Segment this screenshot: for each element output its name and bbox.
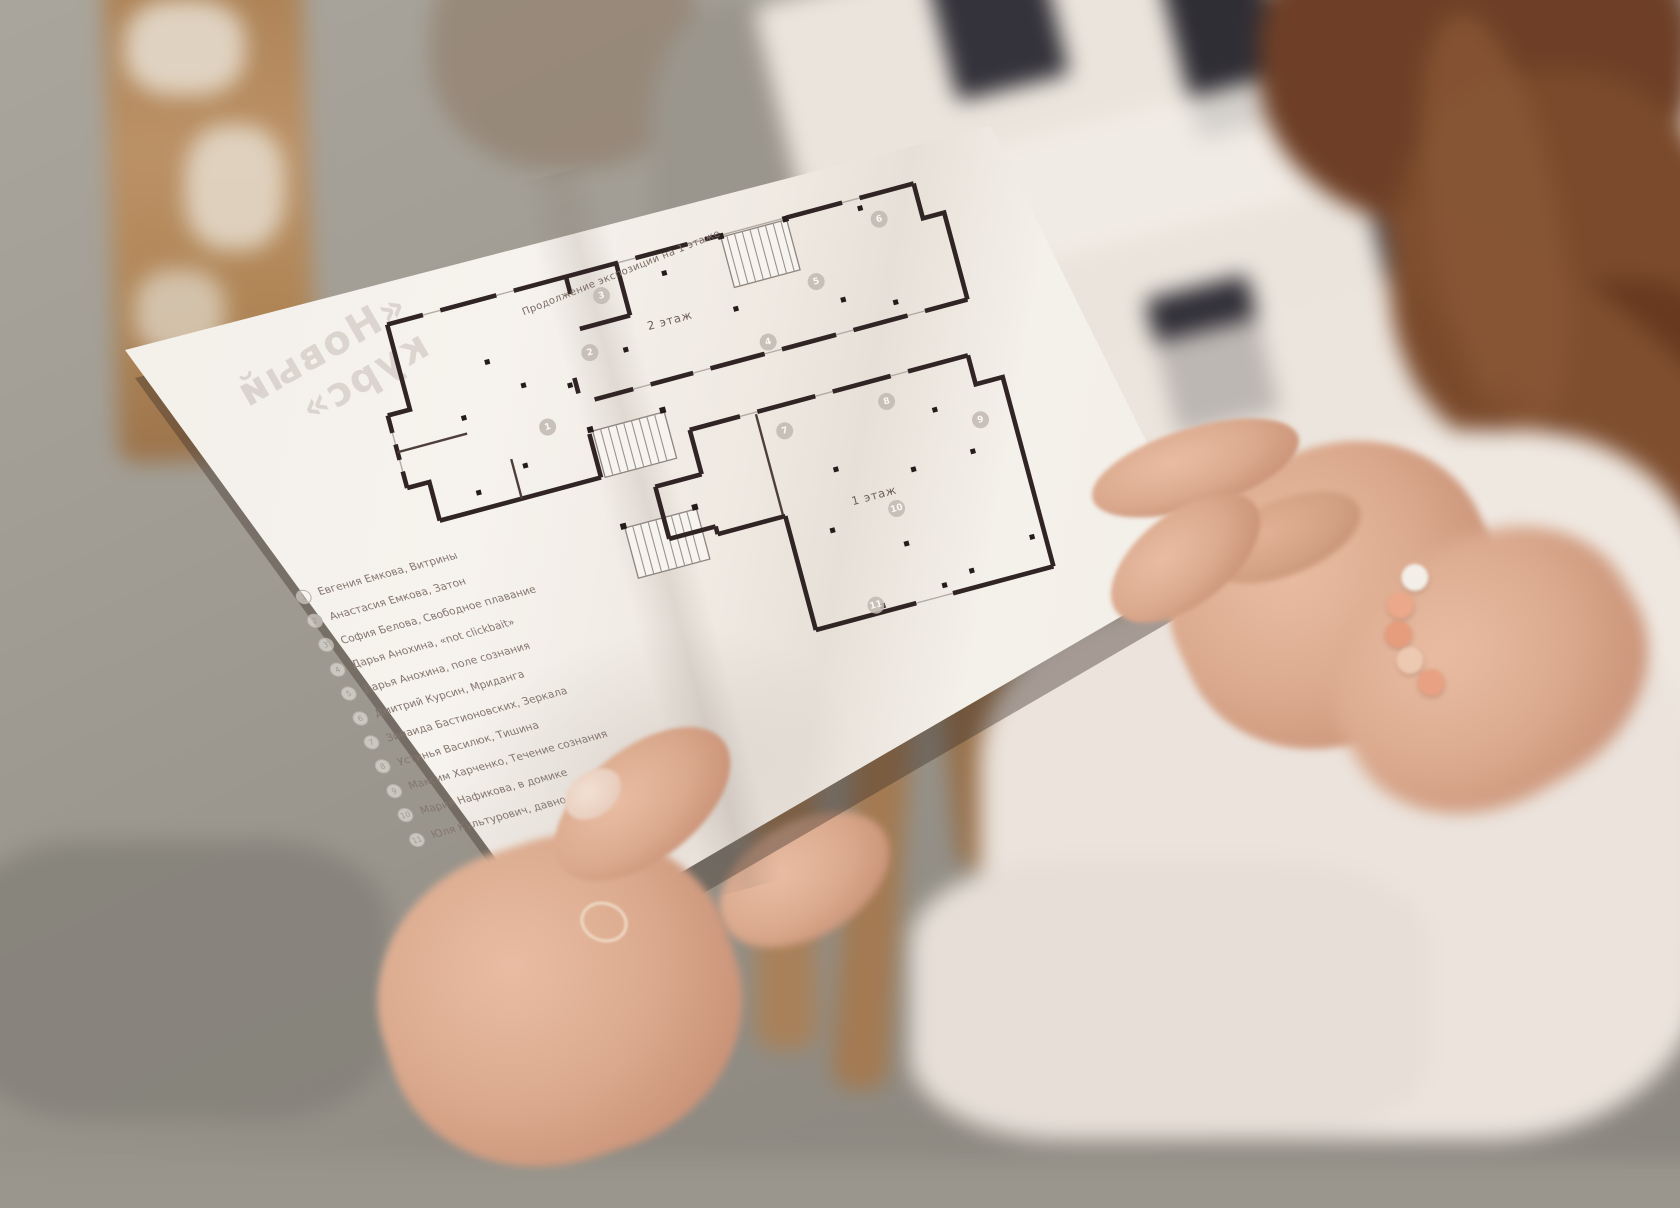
bracelet-bead — [1382, 618, 1414, 650]
bracelet-bead — [1415, 666, 1447, 698]
blouse — [910, 860, 1430, 1140]
paint-patch — [185, 125, 285, 250]
paint-patch — [125, 0, 245, 95]
bracelet-bead — [1399, 561, 1431, 593]
bracelet-bead — [1384, 589, 1416, 621]
